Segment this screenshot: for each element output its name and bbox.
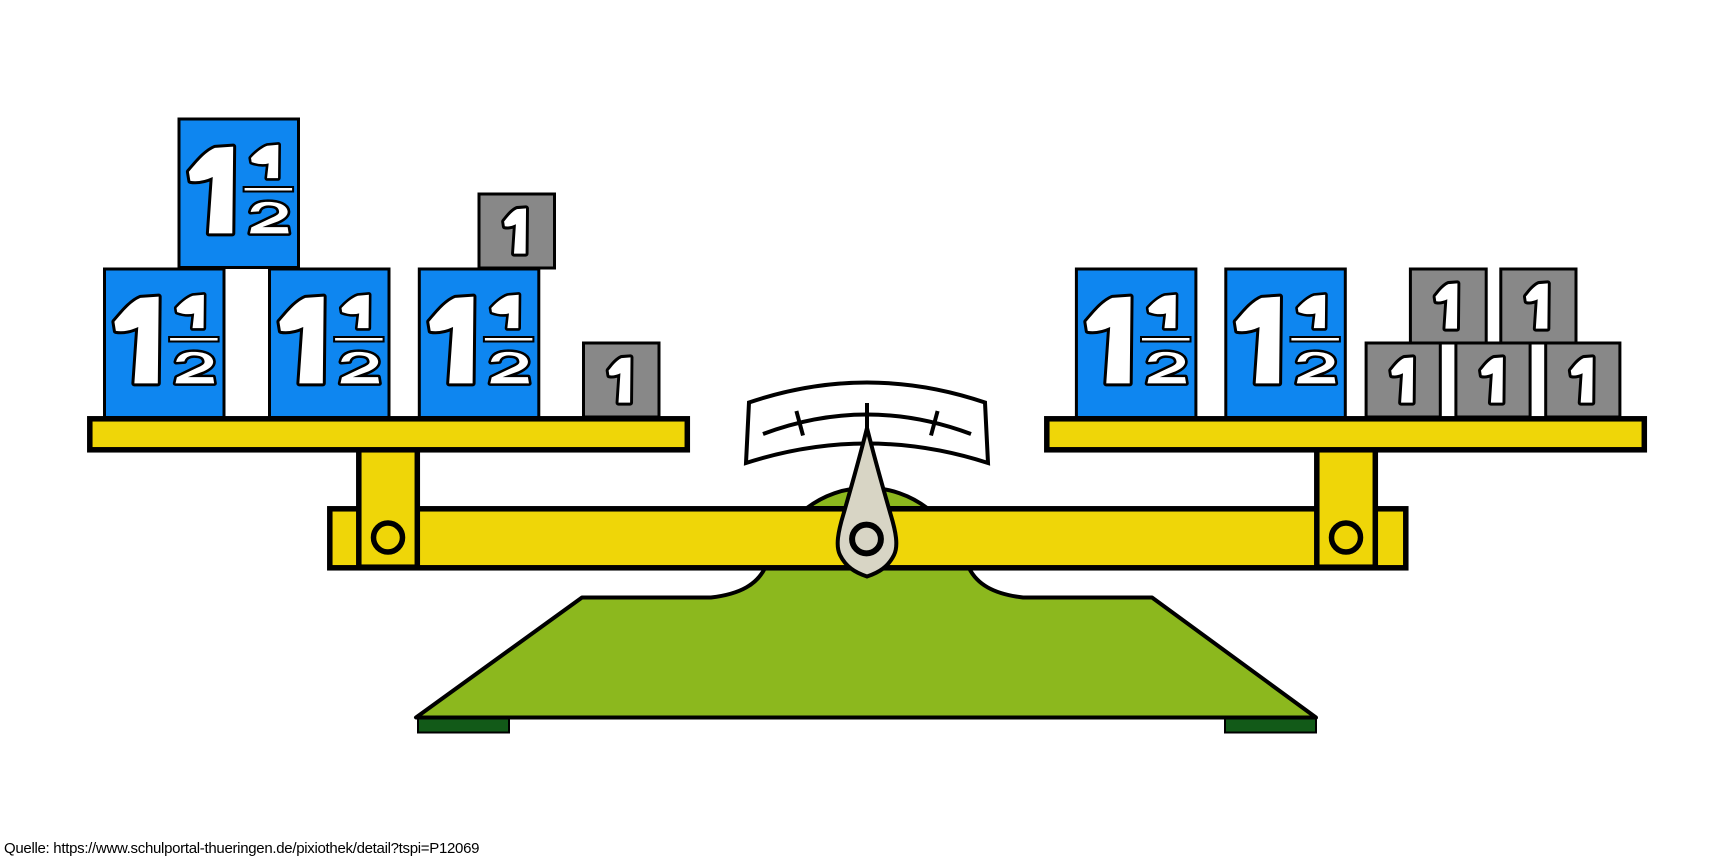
svg-text:Quelle: https://www.schulporta: Quelle: https://www.schulportal-thuering… bbox=[4, 840, 479, 857]
